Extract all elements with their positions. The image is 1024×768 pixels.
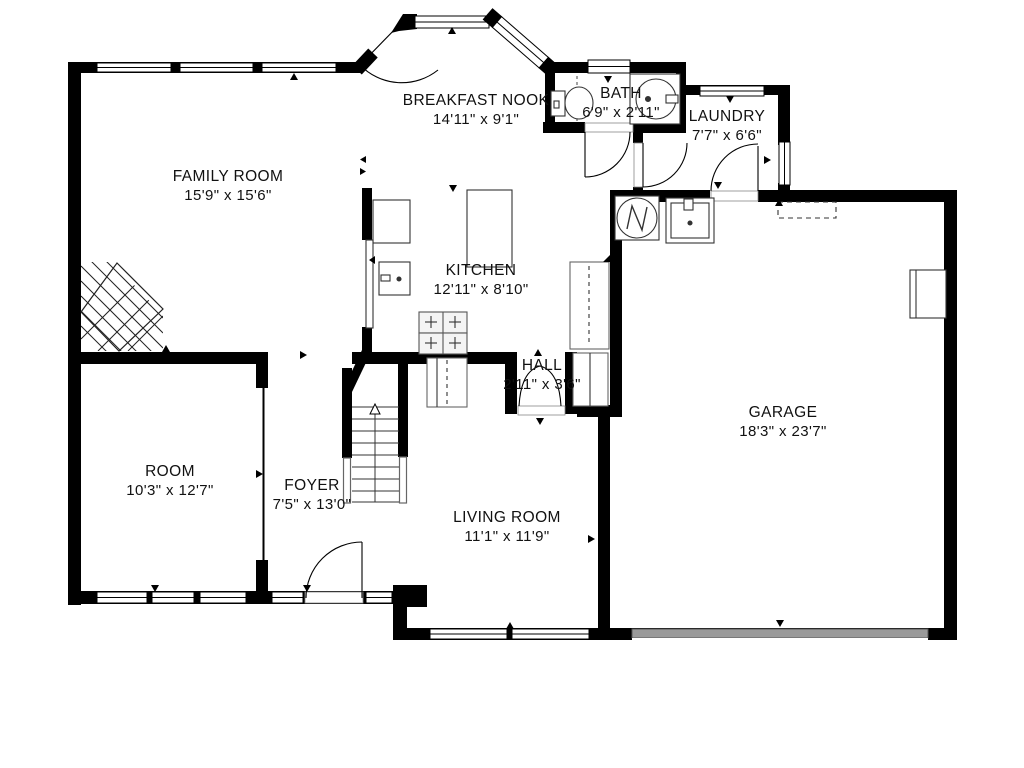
room-dims: 14'11" x 9'1" bbox=[403, 110, 550, 129]
refrigerator-counter-icon bbox=[373, 200, 410, 243]
room-dims: 7'5" x 13'0" bbox=[273, 495, 352, 514]
room-dims: 7'7" x 6'6" bbox=[689, 126, 766, 145]
opening-marker bbox=[256, 470, 263, 478]
window bbox=[262, 63, 336, 72]
wall-segment bbox=[778, 85, 790, 145]
pantry-icon bbox=[570, 255, 610, 349]
front-door bbox=[305, 542, 363, 603]
opening-marker bbox=[588, 535, 595, 543]
room-label-family-room: FAMILY ROOM 15'9" x 15'6" bbox=[173, 167, 284, 205]
wall-segment bbox=[944, 190, 957, 640]
bay-wall-stub bbox=[357, 53, 373, 70]
opening-marker bbox=[151, 585, 159, 592]
room-name: FAMILY ROOM bbox=[173, 167, 284, 186]
stair-closet-icon bbox=[427, 358, 467, 407]
room-name: BATH bbox=[582, 84, 660, 103]
bay-window-angled bbox=[483, 9, 557, 76]
window bbox=[430, 629, 507, 639]
opening-marker bbox=[303, 585, 311, 592]
opening-marker bbox=[764, 156, 771, 164]
window bbox=[97, 592, 147, 603]
room-name: BREAKFAST NOOK bbox=[403, 91, 550, 110]
bath-window bbox=[588, 60, 630, 73]
window bbox=[180, 63, 253, 72]
staircase-up-icon bbox=[352, 404, 399, 502]
wall-oven-icon bbox=[379, 262, 410, 295]
room-label-laundry: LAUNDRY 7'7" x 6'6" bbox=[689, 107, 766, 145]
corner-fireplace-icon bbox=[81, 236, 163, 408]
wall-segment bbox=[68, 62, 81, 605]
window bbox=[512, 629, 589, 639]
opening-marker bbox=[290, 73, 298, 80]
stair-wall-right bbox=[398, 352, 408, 457]
room-dims: 10'3" x 12'7" bbox=[126, 481, 213, 500]
kitchen-island-icon bbox=[467, 190, 512, 267]
laundry-window bbox=[700, 86, 764, 96]
room-label-living-room: LIVING ROOM 11'1" x 11'9" bbox=[453, 508, 561, 546]
window bbox=[200, 592, 246, 603]
room-dims: 11'1" x 11'9" bbox=[453, 527, 561, 546]
wall-segment bbox=[362, 188, 372, 240]
room-label-room: ROOM 10'3" x 12'7" bbox=[126, 462, 213, 500]
room-name: GARAGE bbox=[739, 403, 826, 422]
room-name: HALL bbox=[503, 356, 581, 375]
window bbox=[152, 592, 194, 603]
range-cooktop-icon bbox=[419, 312, 467, 354]
wall-segment bbox=[68, 352, 268, 364]
opening-marker bbox=[726, 96, 734, 103]
window bbox=[366, 592, 392, 603]
breakfast-nook-door bbox=[360, 24, 438, 83]
wall-segment bbox=[256, 352, 268, 388]
opening-marker bbox=[536, 418, 544, 425]
garage-door bbox=[632, 629, 928, 641]
bay-corner-cap bbox=[391, 14, 417, 33]
opening-marker bbox=[604, 76, 612, 83]
utility-sink-icon bbox=[666, 198, 714, 243]
opening-marker bbox=[300, 351, 307, 359]
room-dims: 6'9" x 2'11" bbox=[582, 103, 660, 122]
garage-side-window-icon bbox=[910, 270, 946, 318]
laundry-side-window bbox=[779, 142, 790, 185]
window bbox=[97, 63, 171, 72]
room-name: LIVING ROOM bbox=[453, 508, 561, 527]
room-name: ROOM bbox=[126, 462, 213, 481]
stair-wall-left bbox=[342, 368, 352, 458]
room-label-foyer: FOYER 7'5" x 13'0" bbox=[273, 476, 352, 514]
room-dims: 12'11" x 8'10" bbox=[433, 280, 528, 299]
opening-marker bbox=[776, 620, 784, 627]
opening-marker bbox=[714, 182, 722, 189]
stair-lower-wall-right bbox=[400, 457, 407, 503]
opening-marker bbox=[360, 156, 366, 163]
room-dims: 18'3" x 23'7" bbox=[739, 422, 826, 441]
counter-thin-wall bbox=[366, 240, 373, 328]
floor-plan: FAMILY ROOM 15'9" x 15'6" BREAKFAST NOOK… bbox=[0, 0, 1024, 768]
wall-segment bbox=[758, 190, 955, 202]
room-label-kitchen: KITCHEN 12'11" x 8'10" bbox=[433, 261, 528, 299]
stairs-up-arrow bbox=[370, 404, 380, 414]
bay-window-top bbox=[415, 16, 489, 28]
wall-segment bbox=[633, 130, 643, 143]
garage-laundry-door bbox=[711, 144, 758, 201]
room-label-hall: HALL 2'11" x 3'6" bbox=[503, 356, 581, 394]
room-label-garage: GARAGE 18'3" x 23'7" bbox=[739, 403, 826, 441]
room-dims: 2'11" x 3'6" bbox=[503, 375, 581, 394]
laundry-door bbox=[634, 143, 687, 187]
room-name: FOYER bbox=[273, 476, 352, 495]
room-label-bath: BATH 6'9" x 2'11" bbox=[582, 84, 660, 122]
attic-access-dashed-icon bbox=[778, 202, 836, 218]
opening-marker bbox=[506, 622, 514, 629]
water-heater-icon bbox=[615, 196, 659, 240]
window bbox=[272, 592, 303, 603]
wall-segment bbox=[598, 405, 610, 640]
room-label-breakfast-nook: BREAKFAST NOOK 14'11" x 9'1" bbox=[403, 91, 550, 129]
room-name: KITCHEN bbox=[433, 261, 528, 280]
opening-marker bbox=[360, 168, 366, 175]
bath-door bbox=[585, 123, 633, 177]
opening-marker bbox=[449, 185, 457, 192]
room-dims: 15'9" x 15'6" bbox=[173, 186, 284, 205]
opening-marker bbox=[162, 345, 170, 352]
room-name: LAUNDRY bbox=[689, 107, 766, 126]
opening-marker bbox=[534, 349, 542, 356]
wall-segment bbox=[543, 122, 585, 133]
